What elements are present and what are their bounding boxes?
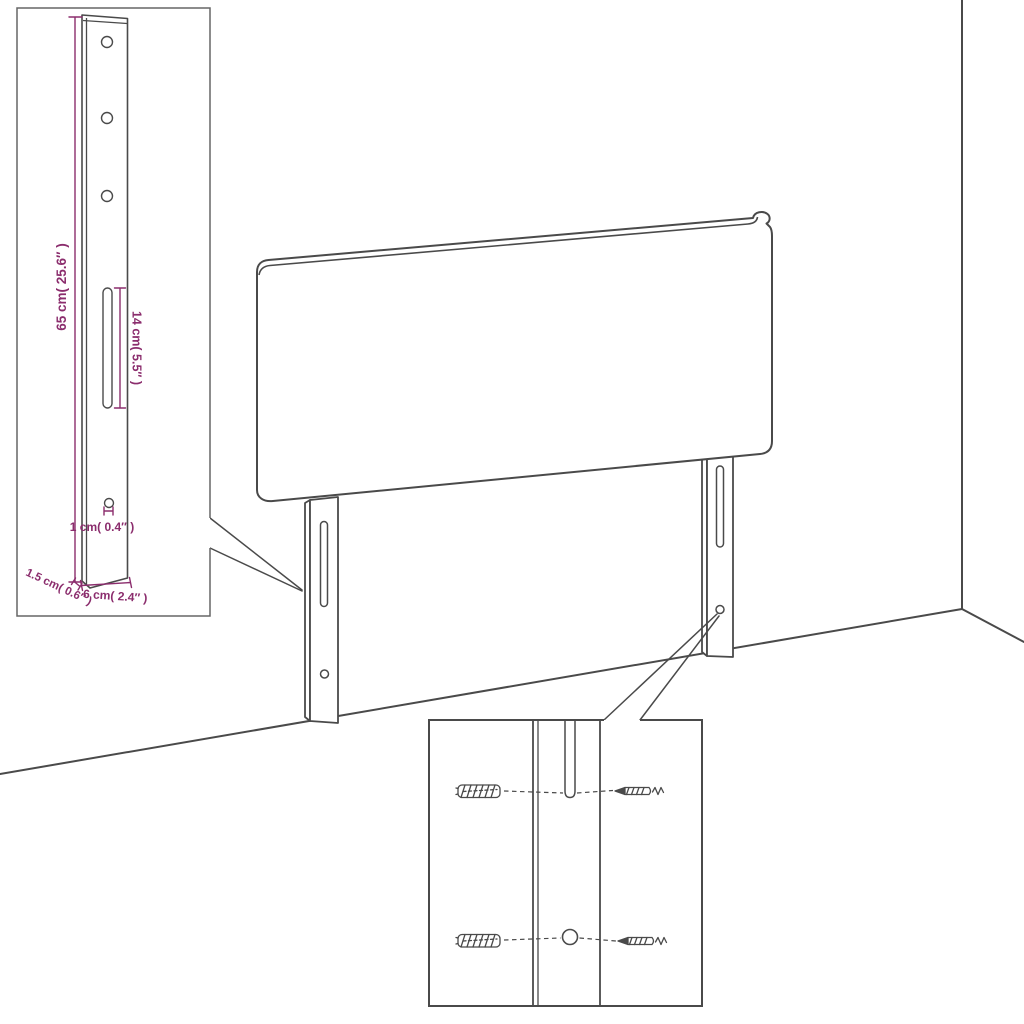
bracket-hole — [102, 191, 113, 202]
bracket-detail-inset: 65 cm( 25.6″ ) 14 cm( 5.5″ ) 1 cm( 0.4″ … — [17, 8, 210, 616]
label-hole-diameter: 1 cm( 0.4″ ) — [70, 520, 134, 534]
bracket-hole — [102, 113, 113, 124]
right-leg-hole — [716, 606, 724, 614]
right-leg-slot — [717, 466, 724, 547]
assembly-diagram: 65 cm( 25.6″ ) 14 cm( 5.5″ ) 1 cm( 0.4″ … — [0, 0, 1024, 1024]
callout-line — [640, 616, 719, 720]
label-slot-length: 14 cm( 5.5″ ) — [130, 311, 144, 385]
bracket-slot — [103, 288, 112, 408]
headboard-left-leg — [305, 497, 338, 723]
left-leg-slot — [321, 522, 328, 607]
bracket-hole — [102, 37, 113, 48]
headboard-right-leg — [702, 450, 733, 657]
headboard-panel — [257, 212, 772, 501]
left-leg-hole — [321, 670, 329, 678]
floor-line-right — [962, 609, 1024, 642]
callout-wedge-left — [210, 518, 302, 591]
panel-face — [257, 212, 772, 501]
bracket-small-hole — [105, 499, 114, 508]
diagram-svg: 65 cm( 25.6″ ) 14 cm( 5.5″ ) 1 cm( 0.4″ … — [0, 0, 1024, 1024]
label-bracket-height: 65 cm( 25.6″ ) — [54, 243, 69, 331]
fasteners-detail-inset — [429, 720, 702, 1006]
